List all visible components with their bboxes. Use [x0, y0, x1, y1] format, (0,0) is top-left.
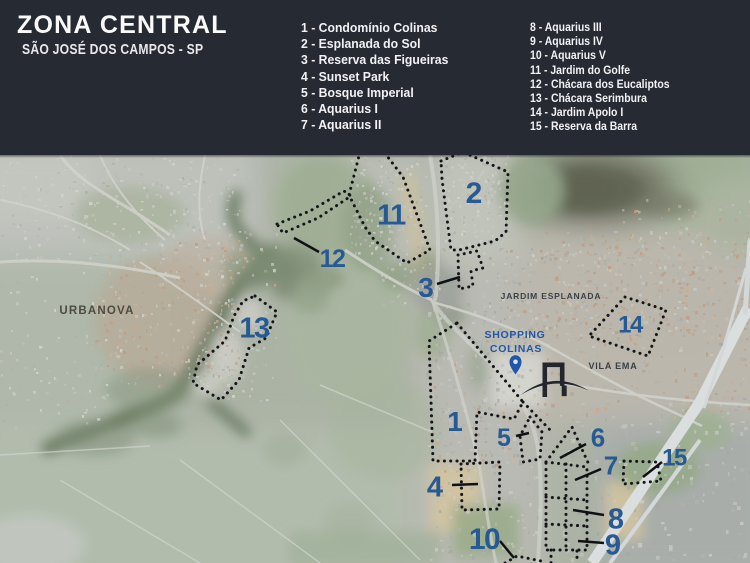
svg-text:6: 6 — [591, 422, 605, 452]
svg-text:COLINAS: COLINAS — [490, 343, 542, 355]
svg-text:13: 13 — [239, 312, 270, 344]
svg-text:URBANOVA: URBANOVA — [59, 305, 134, 317]
svg-text:4: 4 — [427, 471, 443, 503]
svg-text:5: 5 — [497, 424, 511, 452]
svg-text:VILA EMA: VILA EMA — [588, 361, 637, 371]
svg-text:14: 14 — [618, 312, 644, 339]
svg-text:15: 15 — [662, 445, 687, 472]
svg-text:JARDIM ESPLANADA: JARDIM ESPLANADA — [501, 291, 602, 301]
svg-text:1: 1 — [447, 406, 463, 437]
svg-text:7: 7 — [604, 450, 618, 480]
svg-text:10: 10 — [469, 523, 500, 556]
svg-text:11: 11 — [377, 199, 406, 231]
svg-text:3: 3 — [418, 272, 434, 303]
svg-text:9: 9 — [605, 529, 621, 561]
svg-text:2: 2 — [466, 177, 483, 210]
svg-text:12: 12 — [320, 245, 345, 273]
svg-text:SHOPPING: SHOPPING — [484, 329, 545, 341]
